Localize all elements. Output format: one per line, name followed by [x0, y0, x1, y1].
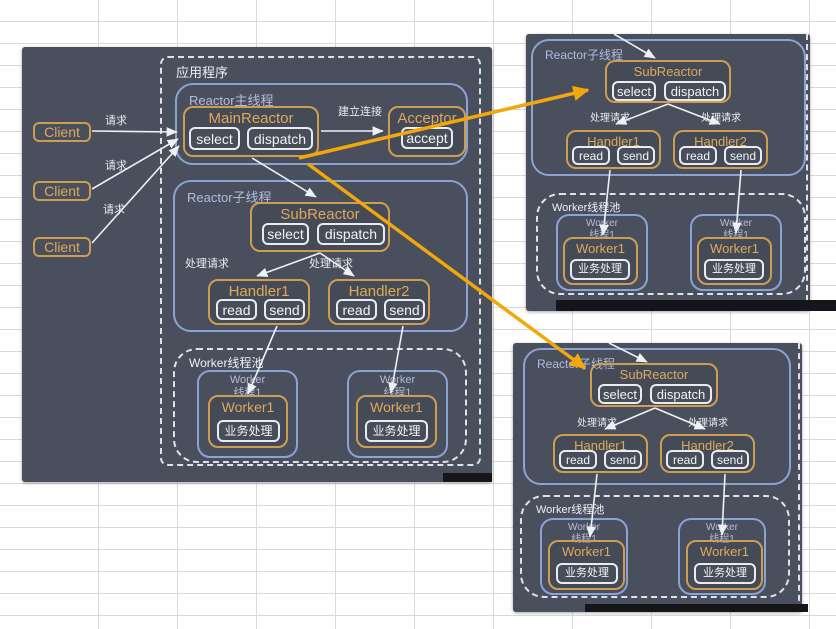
read-button-tr1: read [572, 146, 610, 165]
business-process-button-br-1: 业务处理 [556, 563, 618, 584]
send-button-br2: send [711, 450, 749, 469]
read-button-br1: read [559, 450, 597, 469]
worker1-box-main-2-label: Worker1 [358, 399, 435, 415]
business-process-button-br-2: 业务处理 [694, 563, 756, 584]
application-container-label: 应用程序 [176, 62, 228, 81]
worker-pool-tr-label: Worker线程池 [552, 199, 620, 215]
worker-pool-main-label: Worker线程池 [189, 354, 263, 371]
worker1-box-tr-1-label: Worker1 [565, 241, 636, 256]
business-process-button-main-1: 业务处理 [217, 420, 280, 442]
select-button-sub-main: select [262, 223, 309, 245]
send-button-br1: send [604, 450, 642, 469]
send-button-tr2: send [724, 146, 762, 165]
request-label-2: 请求 [100, 158, 132, 171]
handle-request-label-main-1: 处理请求 [183, 257, 231, 269]
sub-reactor-box-tr-label: SubReactor [607, 64, 729, 79]
read-button-br2: read [666, 450, 704, 469]
main-reactor-box-label: MainReactor [185, 110, 317, 127]
dispatch-button-br: dispatch [650, 384, 712, 404]
read-button-tr2: read [679, 146, 717, 165]
dispatch-button-main: dispatch [247, 127, 313, 150]
send-button-h1-main: send [264, 299, 305, 320]
send-button-h2-main: send [384, 299, 425, 320]
select-button-tr: select [612, 81, 656, 101]
read-button-h2-main: read [336, 299, 377, 320]
handle-request-label-main-2: 处理请求 [307, 257, 355, 269]
request-label-1: 请求 [100, 113, 132, 126]
handle-request-label-br-2: 处理请求 [687, 416, 729, 427]
handler2-box-main-label: Handler2 [330, 283, 428, 300]
worker1-box-br-1-label: Worker1 [550, 544, 623, 559]
handler1-box-main-label: Handler1 [210, 283, 308, 300]
worker1-box-br-2-label: Worker1 [688, 544, 761, 559]
shadow-strip-bottom-right [585, 604, 808, 612]
sub-reactor-box-main-label: SubReactor [252, 206, 388, 223]
dispatch-button-tr: dispatch [664, 81, 726, 101]
client-box-2: Client [33, 181, 91, 201]
business-process-button-main-2: 业务处理 [365, 420, 428, 442]
read-button-h1-main: read [216, 299, 257, 320]
client-box-3: Client [33, 237, 91, 257]
client-box-1: Client [33, 122, 91, 142]
shadow-strip-main [443, 473, 492, 482]
worker-pool-br-label: Worker线程池 [536, 501, 604, 517]
send-button-tr1: send [617, 146, 655, 165]
acceptor-box-label: Acceptor [390, 110, 464, 127]
dashed-edge-top-right [806, 34, 809, 311]
dashed-edge-bottom-right [798, 343, 801, 611]
business-process-button-tr-2: 业务处理 [704, 259, 764, 280]
dispatch-button-sub-main: dispatch [317, 223, 385, 245]
handle-request-label-br-1: 处理请求 [576, 416, 618, 427]
handle-request-label-tr-2: 处理请求 [700, 111, 742, 122]
accept-button: accept [401, 127, 453, 149]
shadow-strip-top-right [556, 300, 836, 311]
worker1-box-tr-2-label: Worker1 [699, 241, 770, 256]
spreadsheet-grid[interactable]: ClientClientClient请求请求请求应用程序Reactor主线程Ma… [0, 0, 836, 629]
business-process-button-tr-1: 业务处理 [570, 259, 630, 280]
request-label-3: 请求 [98, 202, 130, 215]
establish-connection-label: 建立连接 [336, 104, 384, 117]
worker1-box-main-1-label: Worker1 [210, 399, 286, 415]
sub-reactor-box-br-label: SubReactor [592, 367, 716, 382]
select-button-main: select [189, 127, 240, 150]
handle-request-label-tr-1: 处理请求 [589, 111, 631, 122]
select-button-br: select [598, 384, 642, 404]
